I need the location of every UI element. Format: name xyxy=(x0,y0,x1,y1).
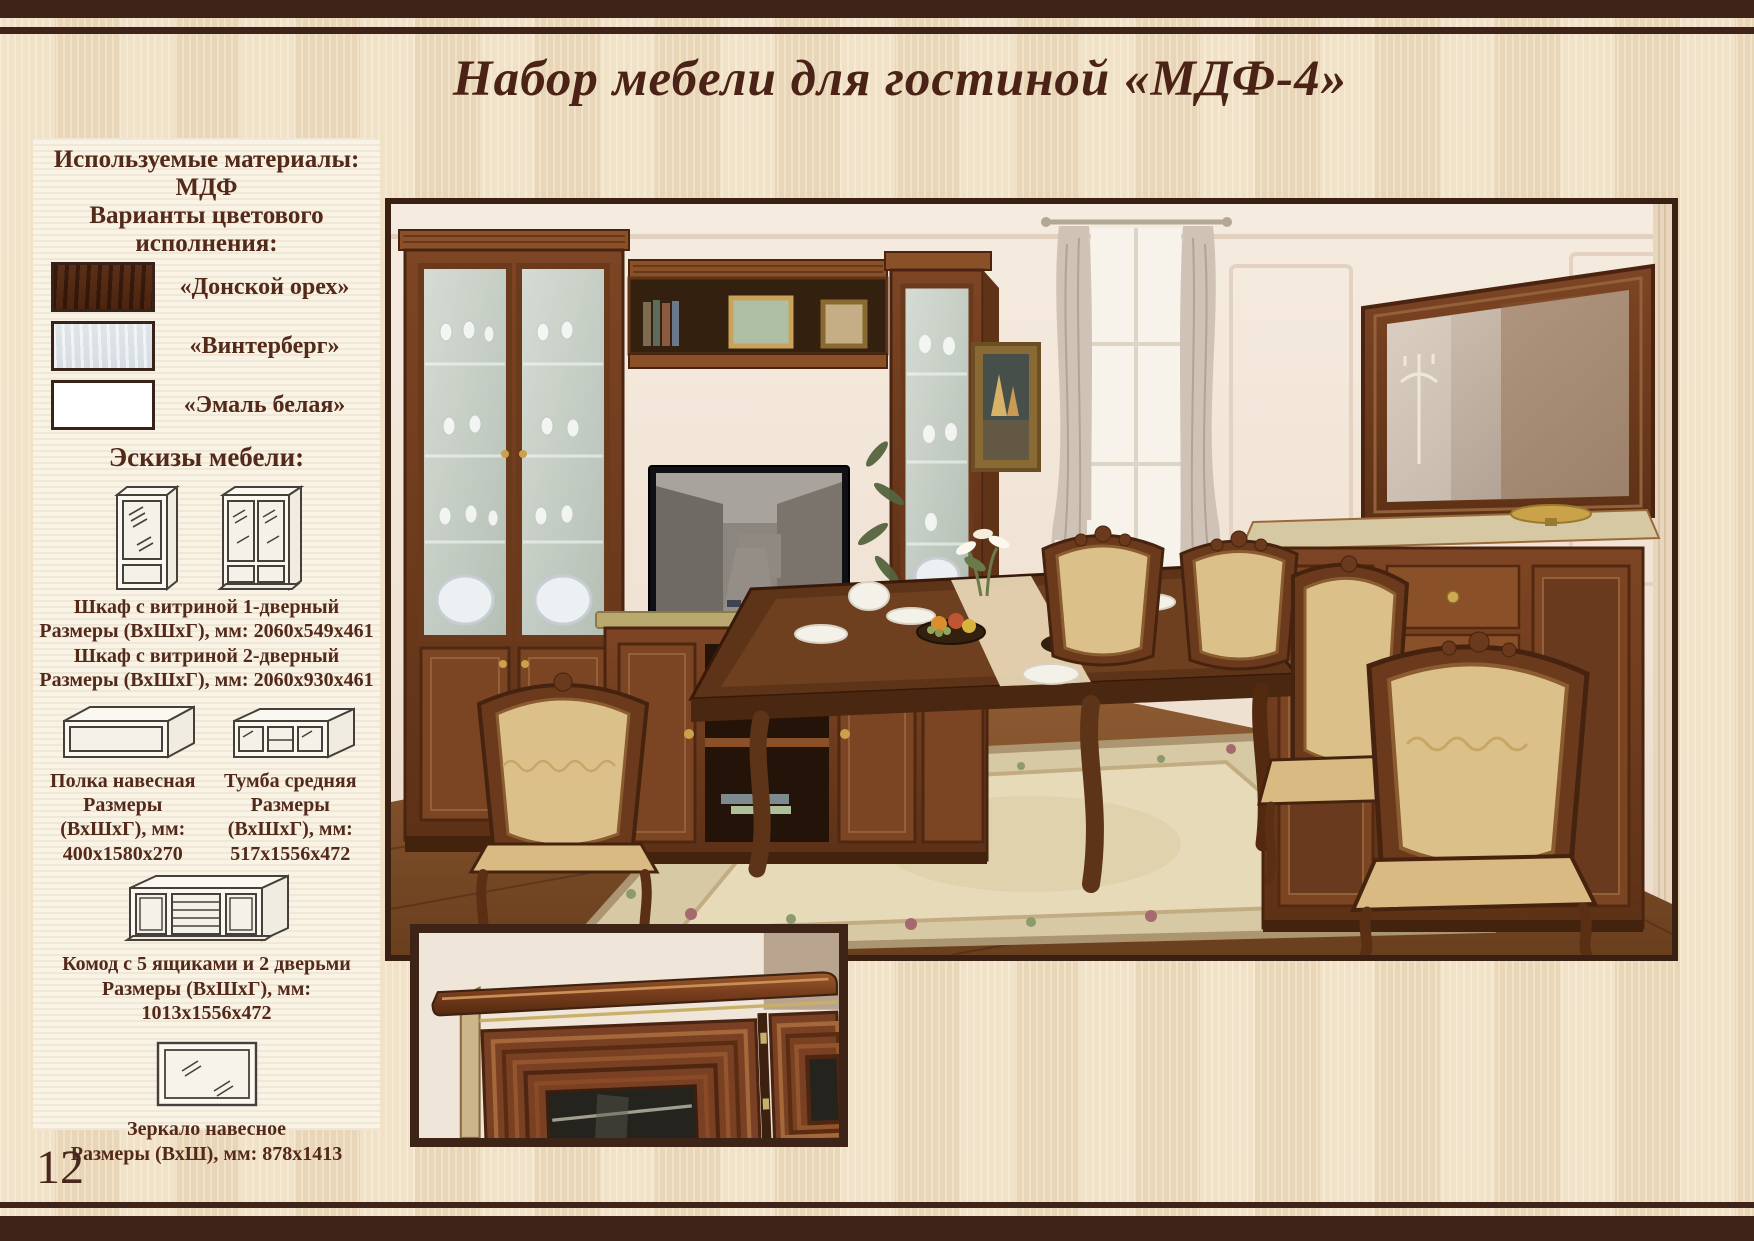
item-dims: Размеры (ВхШ), мм: 878х1413 xyxy=(71,1142,342,1166)
sketch-commode-icon xyxy=(122,870,292,948)
color-swatch-emal-belaya xyxy=(51,380,155,430)
main-photo-living-room xyxy=(385,198,1678,961)
top-rule xyxy=(0,27,1754,34)
item-dims: Размеры (ВхШхГ), мм: 1013х1556х472 xyxy=(57,977,357,1026)
item-name: Шкаф с витриной 1-дверный xyxy=(74,595,339,619)
item-tumba-caption: Тумба средняя Размеры (ВхШхГ), мм: 517х1… xyxy=(207,769,375,867)
item-name: Полка навесная xyxy=(43,769,203,793)
item-dims: Размеры (ВхШхГ), мм: 517х1556х472 xyxy=(211,793,371,866)
catalog-page: Набор мебели для гостиной «МДФ-4» Исполь… xyxy=(0,0,1754,1241)
sketches-heading: Эскизы мебели: xyxy=(109,442,304,473)
color-swatch-donskoy-oreh xyxy=(51,262,155,312)
sketch-cabinet-1door-icon xyxy=(107,481,185,593)
swatch-row-vinterberg: «Винтерберг» xyxy=(39,321,374,371)
detail-photo-door-molding xyxy=(410,924,848,1147)
colors-heading: Варианты цветового исполнения: xyxy=(39,202,374,257)
materials-heading: Используемые материалы: xyxy=(54,146,360,174)
bottom-rule xyxy=(0,1202,1754,1208)
sketch-mirror-icon xyxy=(152,1037,262,1111)
item-dims: Размеры (ВхШхГ), мм: 400х1580х270 xyxy=(43,793,203,866)
swatch-row-white: «Эмаль белая» xyxy=(39,380,374,430)
item-dims: Размеры (ВхШхГ), мм: 2060х930х461 xyxy=(39,668,373,692)
photo-painting xyxy=(973,344,1039,470)
swatch-label: «Эмаль белая» xyxy=(155,392,374,419)
photo-mirror xyxy=(1363,266,1653,522)
item-shelf-caption: Полка навесная Размеры (ВхШхГ), мм: 400х… xyxy=(39,769,207,867)
sketch-wall-shelf-icon xyxy=(58,701,198,763)
sketch-cabinet-2door-icon xyxy=(215,481,307,593)
item-name: Зеркало навесное xyxy=(127,1117,286,1141)
swatch-label: «Донской орех» xyxy=(155,274,374,301)
materials-value: МДФ xyxy=(176,174,238,202)
top-bar xyxy=(0,0,1754,18)
item-name: Тумба средняя xyxy=(211,769,371,793)
page-title: Набор мебели для гостиной «МДФ-4» xyxy=(240,50,1560,108)
sidebar: Используемые материалы: МДФ Варианты цве… xyxy=(33,138,380,1130)
sketch-tv-stand-icon xyxy=(228,703,356,763)
bottom-bar xyxy=(0,1216,1754,1241)
swatch-label: «Винтерберг» xyxy=(155,333,374,360)
color-swatch-vinterberg xyxy=(51,321,155,371)
page-number: 12 xyxy=(36,1140,84,1195)
swatch-row-walnut: «Донской орех» xyxy=(39,262,374,312)
item-name: Комод с 5 ящиками и 2 дверьми xyxy=(62,952,351,976)
item-dims: Размеры (ВхШхГ), мм: 2060х549х461 xyxy=(39,619,373,643)
item-name: Шкаф с витриной 2-дверный xyxy=(74,644,339,668)
